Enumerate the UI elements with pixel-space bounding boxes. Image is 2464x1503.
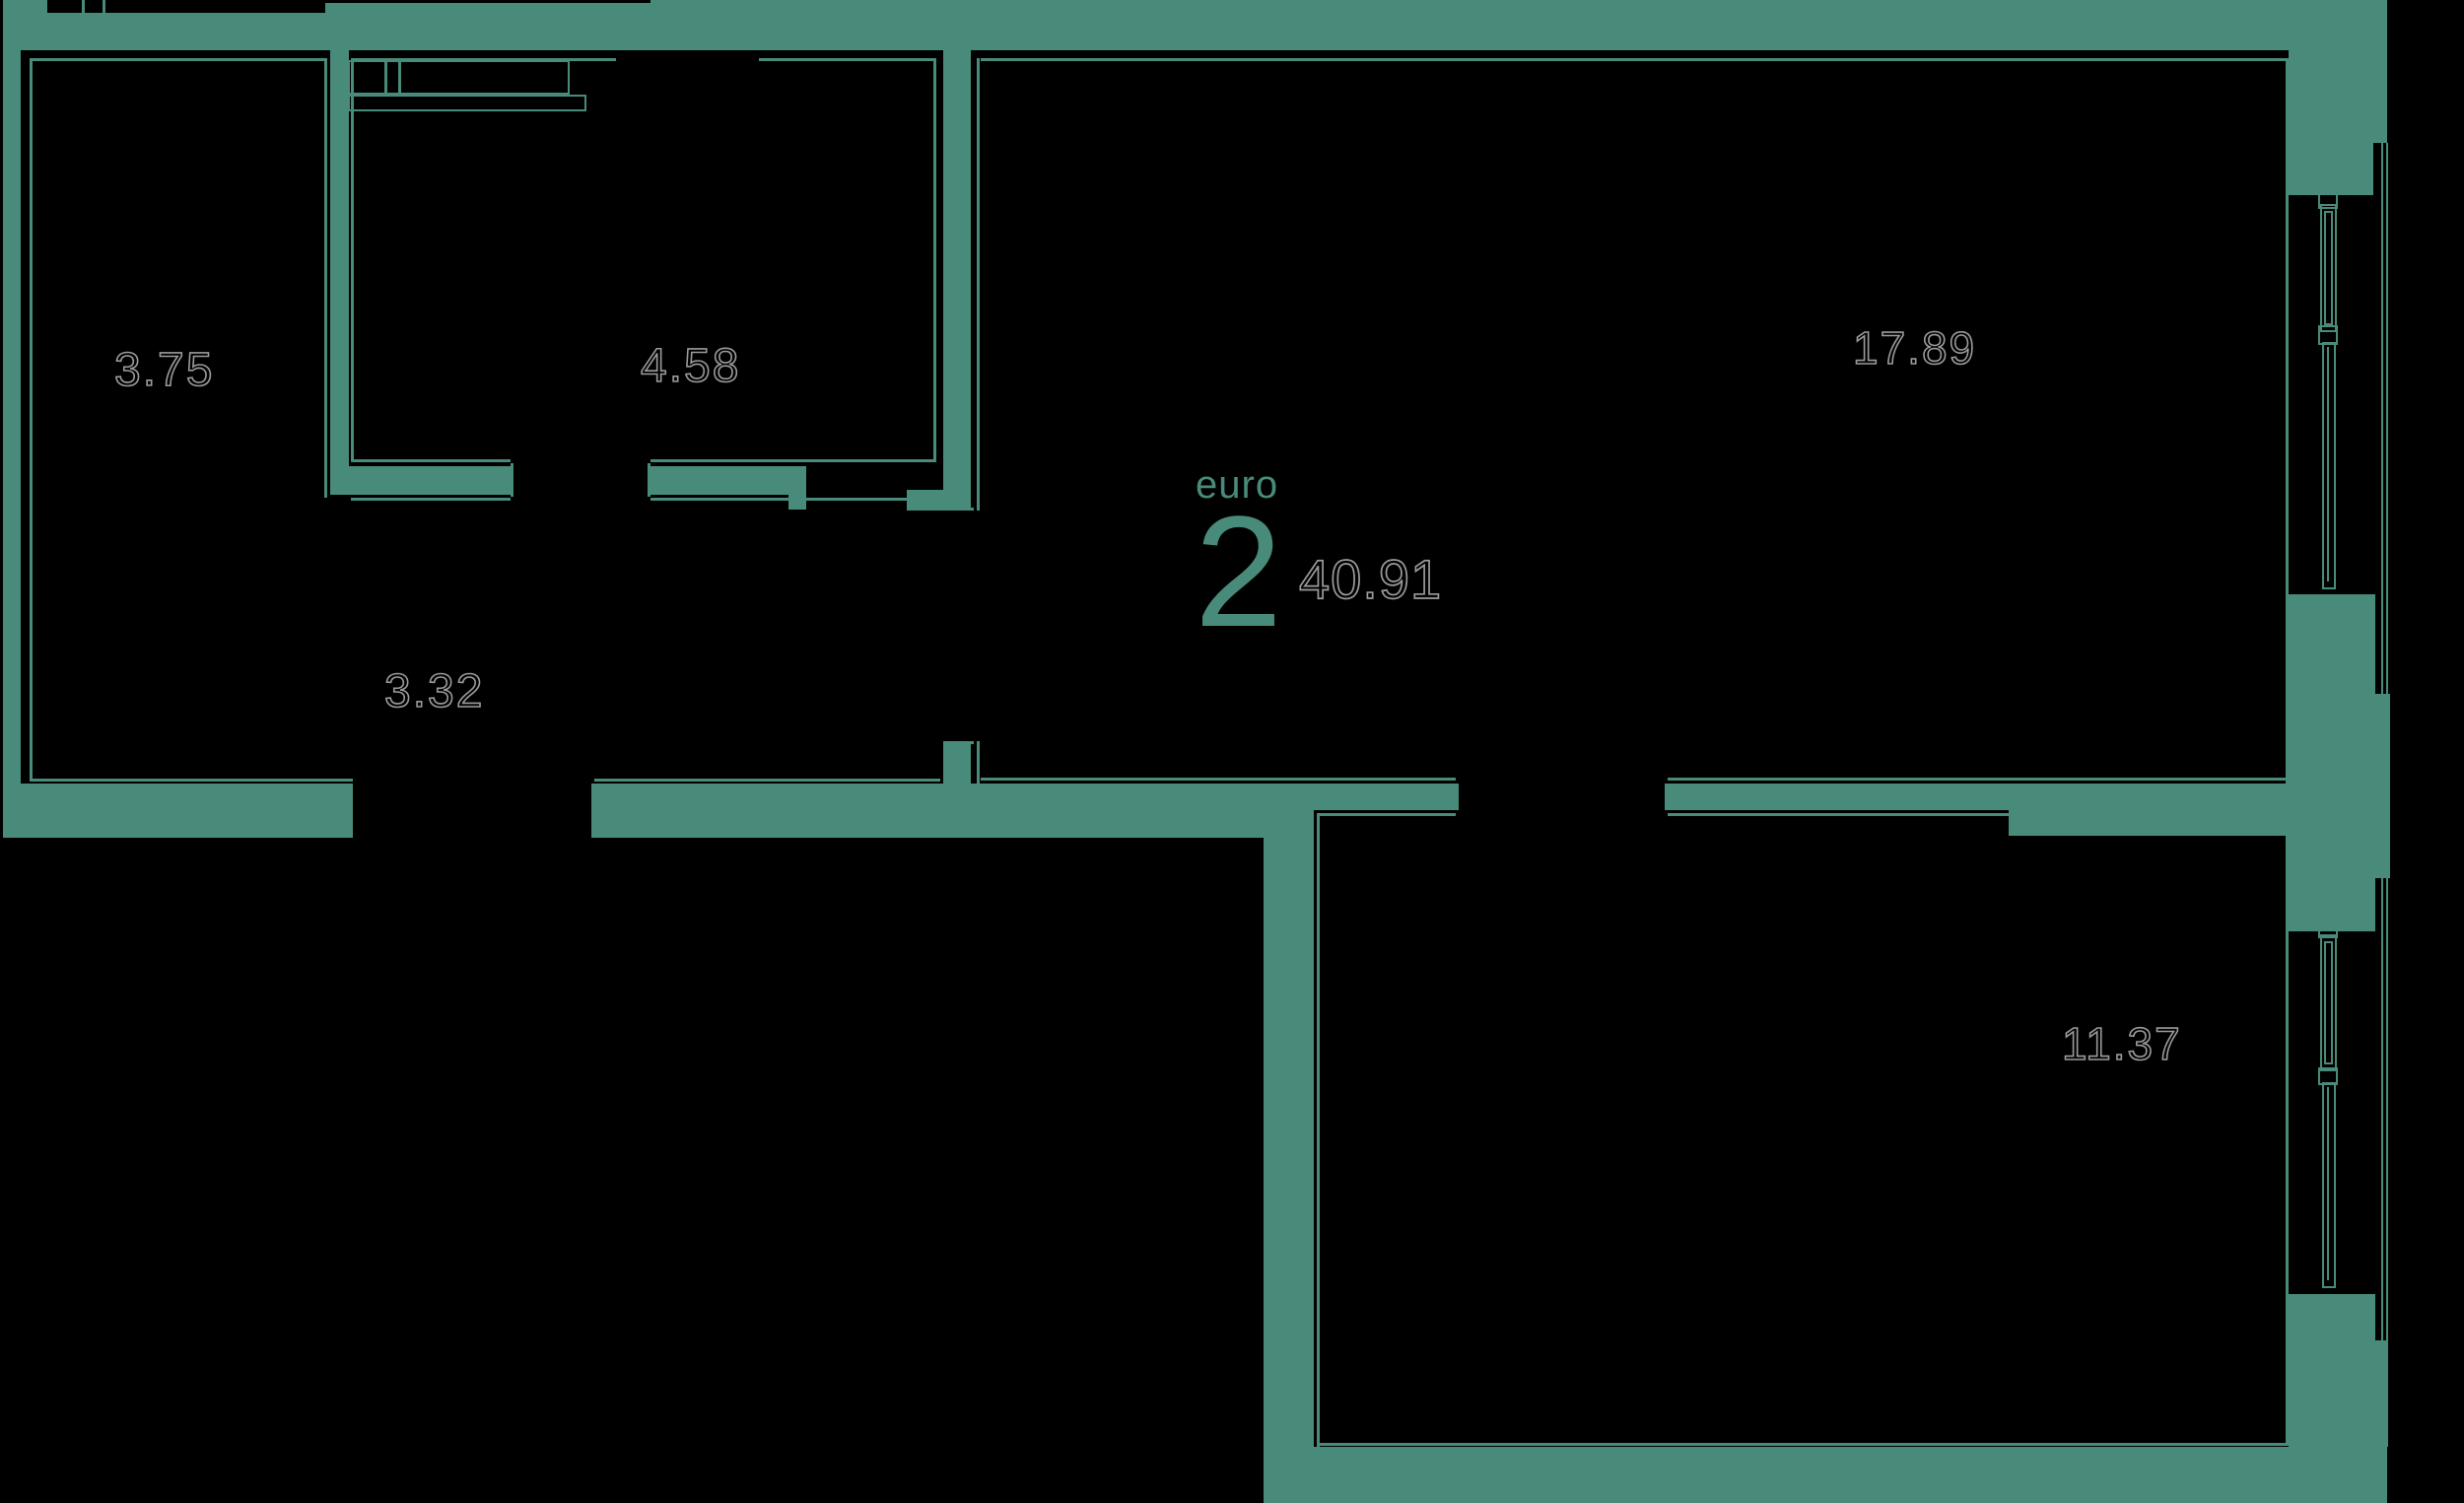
wall-middle-d [1668,784,2009,810]
living-line-top [981,58,2289,61]
top-wall-edge-line [325,0,650,3]
top-window-opening [47,0,325,13]
wall-bathroom-bottom-right [650,466,806,495]
wall-left [3,50,21,838]
bathroom-line-left [351,58,354,462]
wall-bathroom-bottom-left [330,466,511,495]
living-window-lower-sash-line [2327,347,2329,581]
bedroom-line-left [1317,813,1320,1447]
bathroom-line-top-right [759,58,936,61]
corridor-line-top-left [351,498,511,501]
floor-plan: 3.75 4.58 3.32 17.89 11.37 euro 2 40.91 [0,0,2464,1503]
unit-rooms-count: 2 [1195,493,1282,650]
top-window-tick-2 [103,0,105,13]
wall-middle-a [3,784,353,838]
room-area-hall: 3.75 [114,347,214,394]
bedroom-line-bottom [1319,1443,2289,1446]
room-area-bedroom: 11.37 [2062,1021,2182,1066]
room-area-corridor: 3.32 [384,668,484,716]
hall-line-top [30,58,325,61]
wall-right-balcony-chunk [2289,694,2390,878]
corridor-line-top-right [650,498,936,501]
bathroom-line-bottom-right [650,459,936,462]
corridor-line-bottom-left [30,779,353,782]
hall-line-left [30,58,33,779]
hall-line-right [324,58,327,498]
bathroom-line-right [933,58,936,462]
room-area-living: 17.89 [1853,325,1976,371]
bedroom-window-upper-sash-inner [2324,941,2333,1064]
wardrobe-lower-outline [348,95,586,111]
bathroom-door-jamb-right [648,463,650,497]
wall-right-lower [2289,1294,2375,1340]
facade-line-outer [2381,143,2383,1447]
living-line-bottom-right [1668,778,2289,781]
corridor-line-bottom-right [594,779,940,782]
wall-hall-bathroom [330,50,349,495]
living-line-left-upper [977,58,980,511]
wall-middle-e [2009,784,2291,836]
living-window-upper-sash-inner [2324,211,2333,325]
bedroom-line-top-left [1319,813,1456,816]
wall-middle-b [594,784,1281,838]
bathroom-door-jamb-left [511,463,513,497]
bedroom-line-top-right [1668,813,2289,816]
top-window-tick-1 [82,0,85,13]
living-line-bottom-left [981,778,1456,781]
wardrobe-divider-1 [384,60,387,95]
bedroom-window-lower-sash-line [2327,1087,2329,1280]
wall-bottom [1264,1447,2387,1503]
wardrobe-upper-outline [348,60,570,95]
unit-total-area: 40.91 [1299,552,1442,607]
living-line-left-lower [977,741,980,784]
wall-right-bottom [2289,1340,2387,1447]
living-window-lower-sash [2322,342,2336,589]
top-window-sill-line [47,13,325,16]
wall-bedroom-left [1264,784,1314,1503]
wall-bathroom-bottom-post [788,466,806,510]
facade-line-inner [2386,143,2388,1447]
bathroom-line-bottom-left [351,459,511,462]
wall-bathroom-right [943,50,971,511]
wall-right-upper [2289,143,2373,195]
bedroom-window-lower-sash [2322,1082,2336,1288]
entrance-jamb-right [591,784,594,838]
wardrobe-divider-2 [398,60,401,95]
entrance-jamb-left [350,784,353,838]
room-area-bathroom: 4.58 [641,343,740,390]
wall-right-top [2289,0,2387,143]
right-inner-face-line [2286,58,2289,1444]
wall-top [3,0,2387,50]
living-opening-cap-bottom [943,741,974,744]
wall-corridor-right-stub [943,741,971,784]
bedroom-door-jamb-right [1665,784,1668,810]
living-opening-cap-top [943,508,974,511]
bedroom-door-jamb-left [1456,784,1459,810]
